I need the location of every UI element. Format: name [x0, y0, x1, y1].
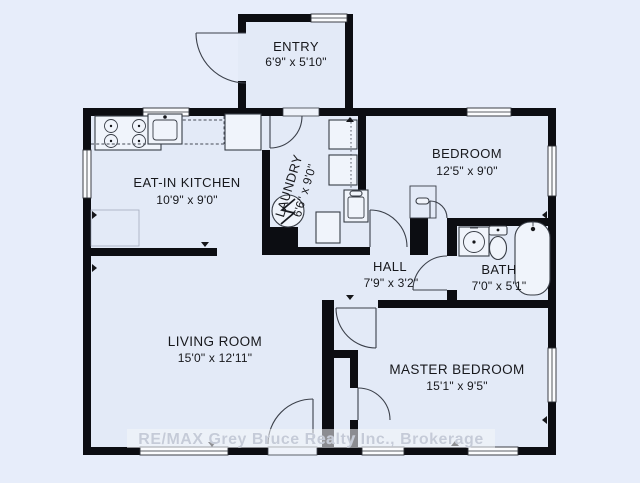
wall-entry-right	[345, 14, 353, 108]
wall-hall-bottom	[378, 300, 556, 308]
wall-stub	[410, 218, 428, 255]
floorplan-page: ENTRY 6'9" x 5'10" EAT-IN KITCHEN 10'9" …	[0, 0, 640, 483]
entry-name: ENTRY	[273, 39, 319, 54]
dryer-icon	[329, 155, 357, 185]
wall-entry-left-upper	[238, 14, 246, 33]
floorplan-drawing: ENTRY 6'9" x 5'10" EAT-IN KITCHEN 10'9" …	[0, 0, 640, 483]
toilet-icon	[489, 226, 507, 260]
window-bedroom-right	[548, 146, 556, 196]
watermark-text: RE/MAX Grey Bruce Realty Inc., Brokerage	[138, 431, 483, 448]
bath-name: BATH	[481, 262, 516, 277]
kitchen-name: EAT-IN KITCHEN	[133, 175, 240, 190]
wall-entry-left-lower	[238, 81, 246, 108]
wall-furnace-corner	[262, 227, 298, 255]
wall-hall-top	[298, 247, 370, 255]
kitchen-dims: 10'9" x 9'0"	[156, 193, 218, 207]
entry-dims: 6'9" x 5'10"	[265, 55, 327, 69]
bath-dims: 7'0" x 5'1"	[472, 279, 527, 293]
entry-passage-threshold	[283, 108, 319, 116]
kitchen-sink-icon	[148, 114, 182, 144]
master-bedroom-dims: 15'1" x 9'5"	[426, 379, 488, 393]
window-kitchen-left	[83, 150, 91, 198]
wall-bath-left-upper	[447, 226, 457, 256]
window-living-bottom	[140, 447, 228, 455]
vanity-sink-icon	[459, 227, 489, 256]
wall-kitchen-living	[91, 248, 217, 256]
freezer-icon	[316, 212, 340, 243]
back-door-threshold	[268, 447, 317, 455]
hall-dims: 7'9" x 3'2"	[364, 276, 419, 290]
wall-closet-cap	[322, 350, 358, 358]
washer-icon	[329, 120, 357, 149]
laundry-tub-icon	[344, 190, 368, 222]
living-room-dims: 15'0" x 12'11"	[178, 351, 252, 365]
hall-name: HALL	[373, 259, 407, 274]
window-master-bottom-1	[362, 447, 404, 455]
window-bedroom-top	[467, 108, 511, 116]
master-bedroom-name: MASTER BEDROOM	[389, 362, 524, 377]
window-master-bottom-2	[468, 447, 518, 455]
window-entry-top	[311, 14, 347, 22]
wall-master-left-upper	[322, 300, 334, 358]
watermark: RE/MAX Grey Bruce Realty Inc., Brokerage	[127, 429, 495, 448]
refrigerator-icon	[225, 114, 261, 150]
bedroom-dims: 12'5" x 9'0"	[436, 164, 498, 178]
wall-closet-right-upper	[350, 358, 358, 388]
window-master-right	[548, 348, 556, 402]
bedroom-name: BEDROOM	[432, 146, 502, 161]
living-room-name: LIVING ROOM	[168, 334, 262, 349]
